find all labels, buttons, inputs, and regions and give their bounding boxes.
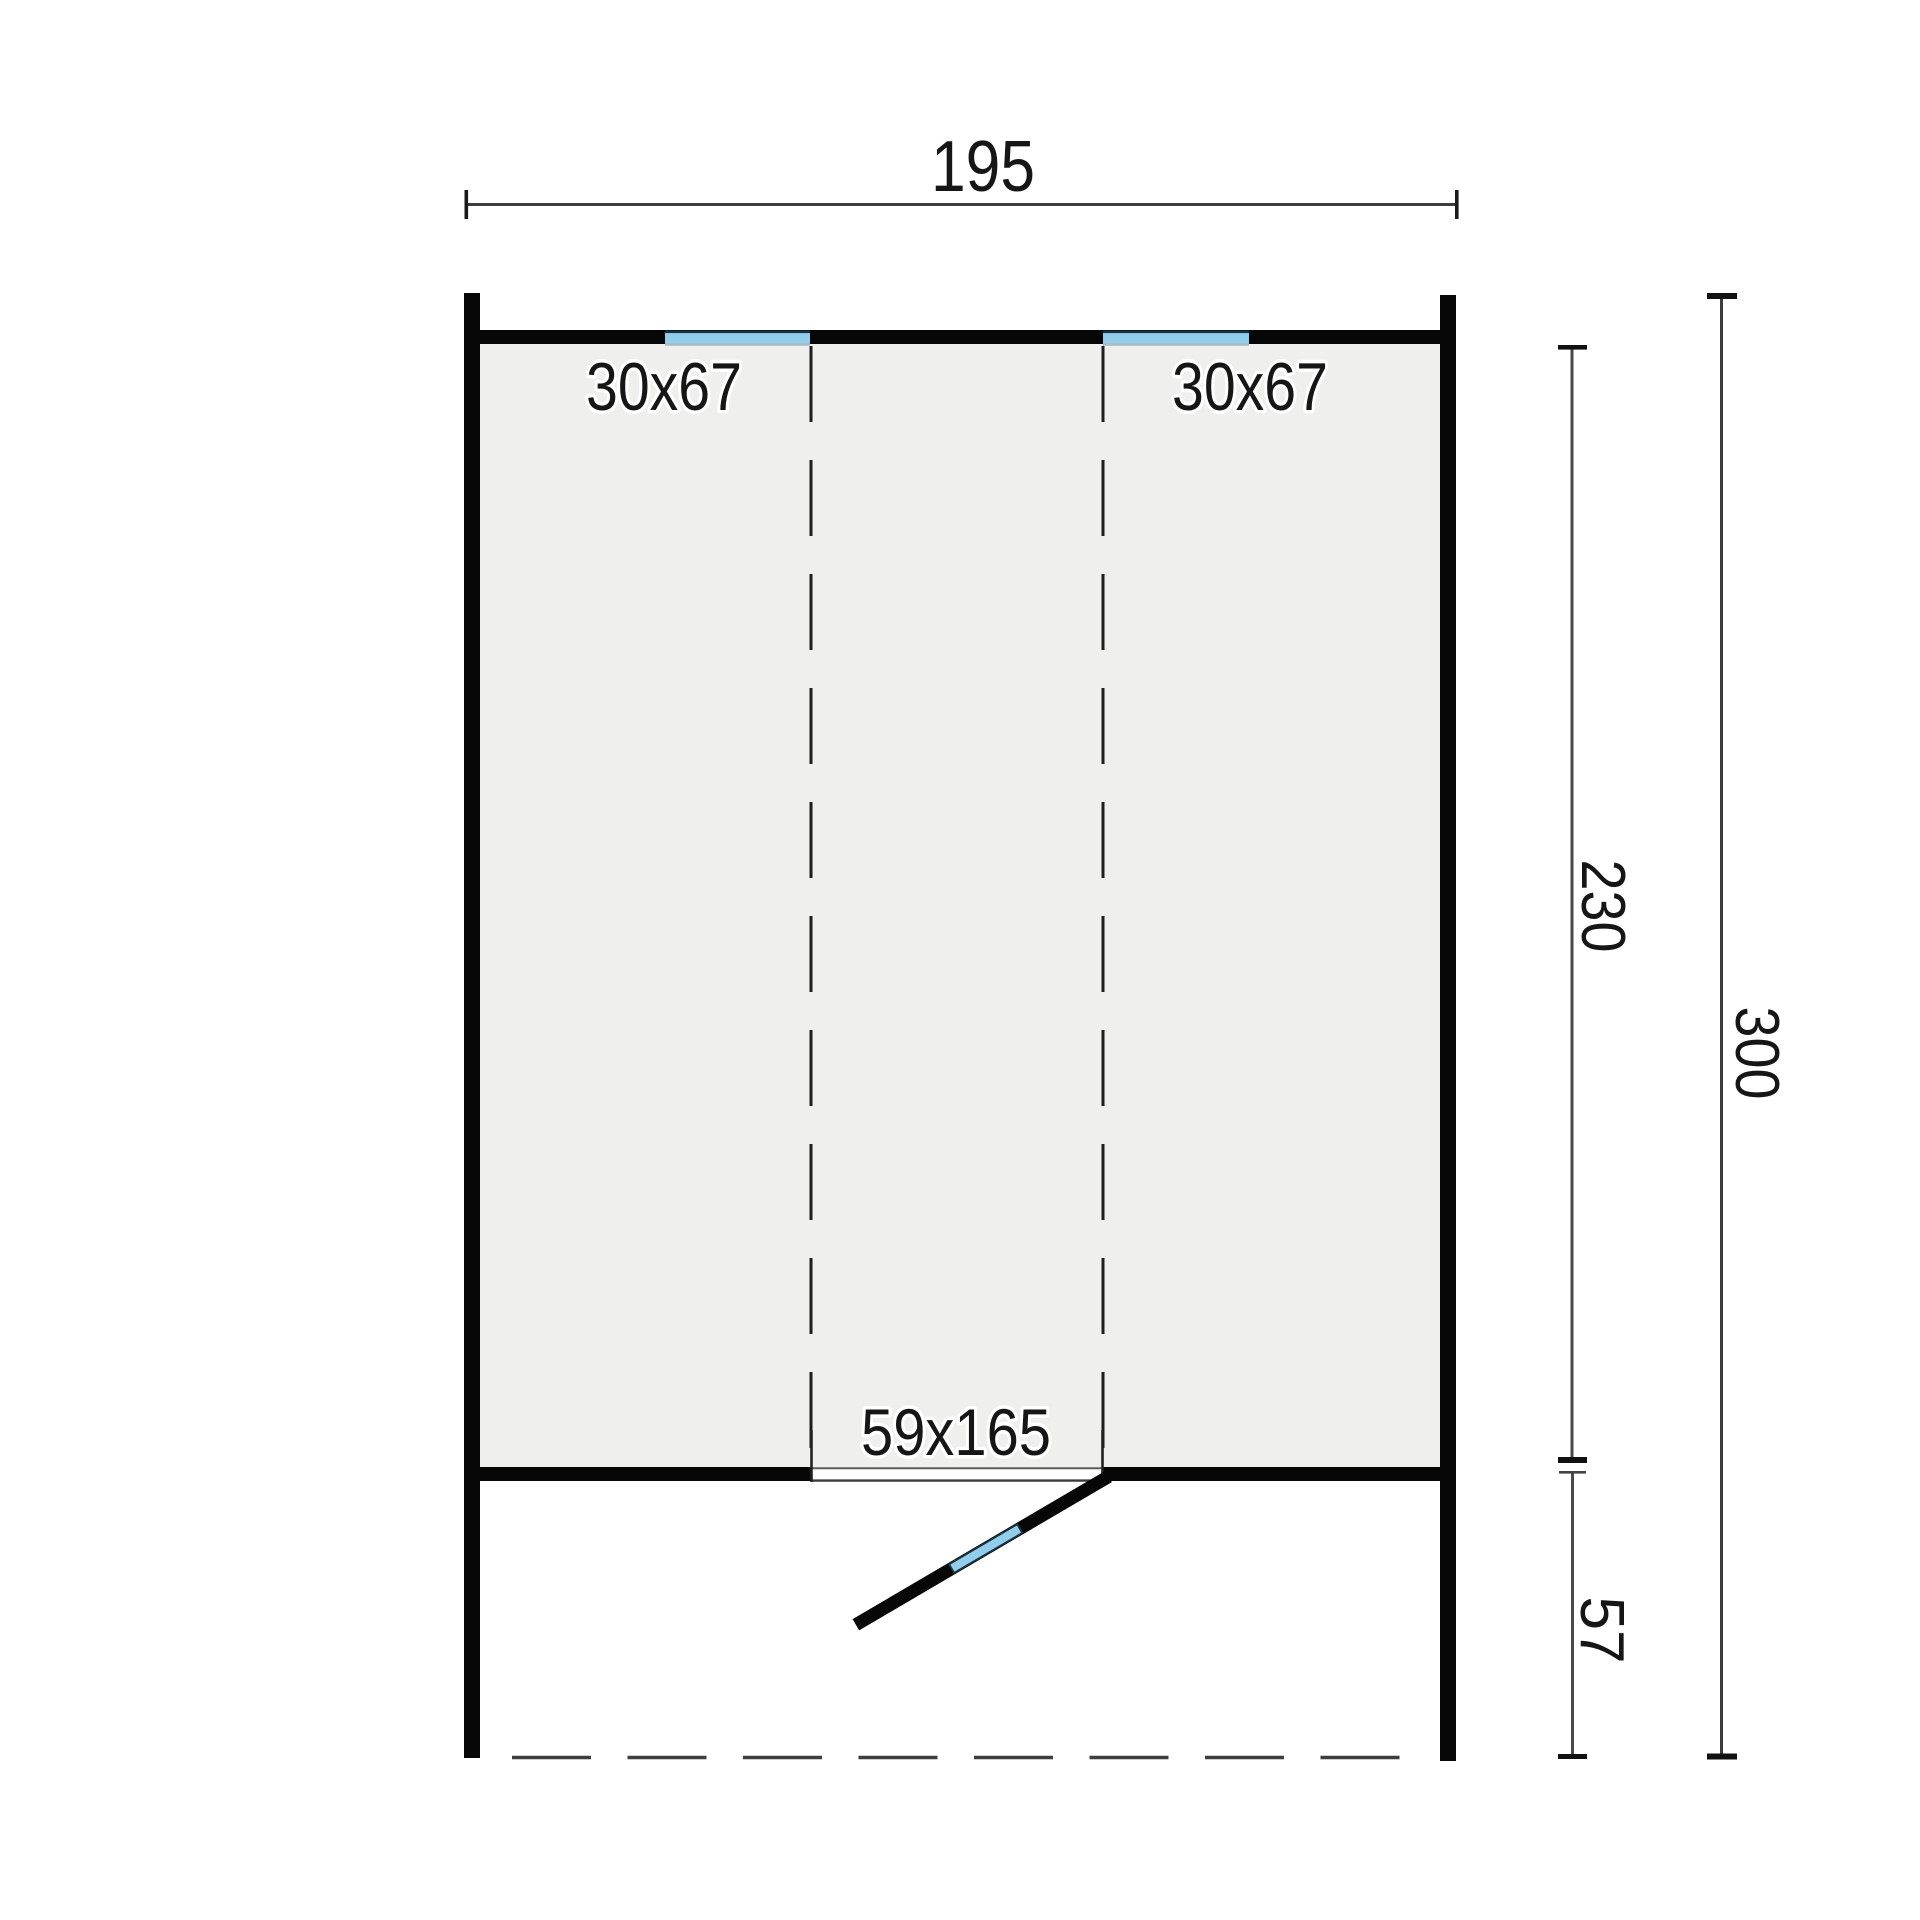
svg-text:59x165: 59x165 bbox=[861, 1395, 1051, 1469]
svg-text:30x67: 30x67 bbox=[586, 349, 742, 425]
svg-text:57: 57 bbox=[1567, 1597, 1636, 1664]
svg-text:30x67: 30x67 bbox=[1172, 349, 1328, 425]
svg-text:195: 195 bbox=[931, 127, 1035, 207]
svg-text:230: 230 bbox=[1568, 860, 1637, 953]
svg-text:300: 300 bbox=[1722, 1007, 1791, 1100]
